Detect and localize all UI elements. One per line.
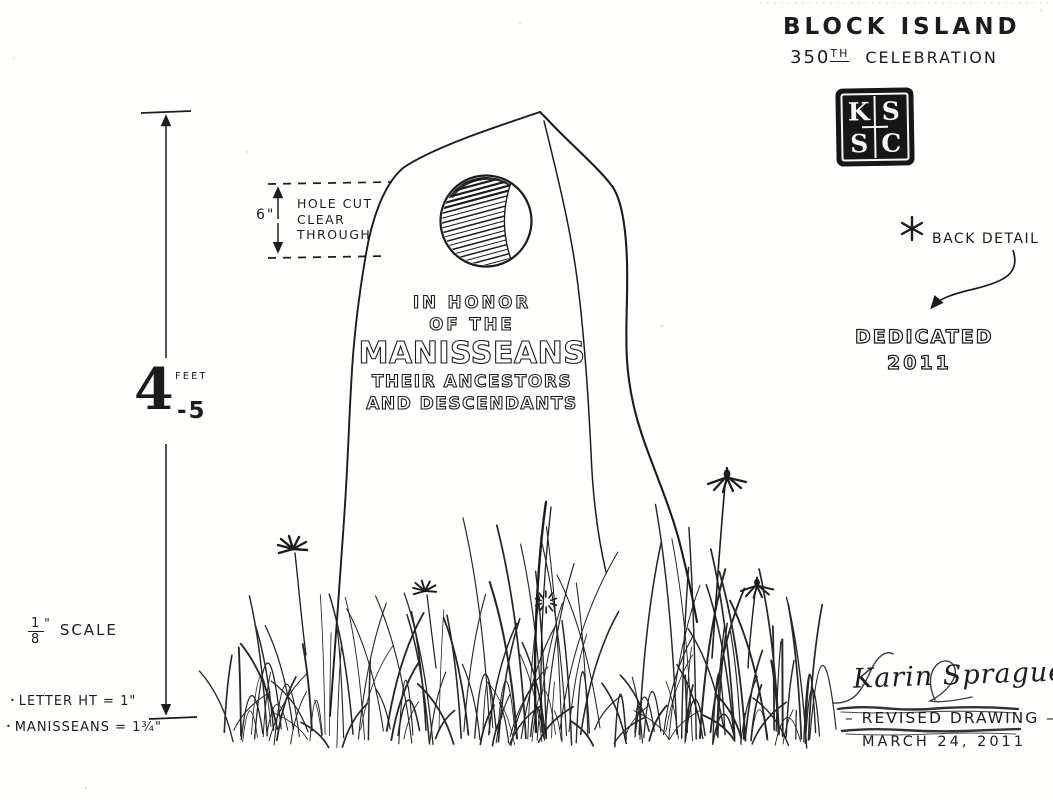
height-feet-unit: FEET [175, 371, 208, 382]
stamp-letter-s1: S [874, 94, 907, 127]
ordinal-suffix: TH [830, 47, 849, 62]
hole-note-line2: CLEAR [297, 212, 373, 228]
inscription-line3: MANISSEANS [352, 339, 592, 369]
hole-inner-crescent [504, 183, 531, 259]
daisy-stem [427, 595, 436, 668]
daisy-stem [295, 553, 306, 655]
inscription-line2: OF THE [352, 317, 592, 334]
hole-note-line1: HOLE CUT [297, 196, 373, 212]
note-bullet: • [6, 722, 12, 731]
back-detail-label: BACK DETAIL [932, 231, 1039, 247]
tall-grass-blades [535, 502, 618, 732]
letter-height-text: LETTER HT = 1" [19, 694, 137, 709]
stamp-letter-k: K [842, 95, 875, 128]
height-feet-value: 4 [134, 356, 174, 423]
dedication-year: 2011 [887, 352, 952, 374]
revision-status: – REVISED DRAWING – [845, 709, 1053, 727]
project-title: BLOCK ISLAND [783, 14, 1021, 40]
grass [200, 505, 837, 749]
scale-denominator: 8 [28, 632, 44, 646]
hole-dimension-value: 6" [256, 207, 275, 223]
manisseans-height-text: MANISSEANS = 1¾" [15, 720, 162, 735]
inscription-line5: AND DESCENDANTS [352, 396, 592, 413]
coneflower-icon [741, 578, 773, 598]
stonecarver-stamp-logo: K S S C [835, 87, 914, 166]
inscription-line1: IN HONOR [352, 295, 592, 312]
inch-mark: " [44, 616, 52, 630]
memorial-stone-drawing-page: BLOCK ISLAND 350THCELEBRATION K S S C BA… [0, 0, 1053, 800]
note-bullet: • [10, 696, 16, 705]
daisy-flower-icon [413, 581, 436, 595]
scale-numerator: 1 [28, 617, 44, 632]
hole-cut-detail [427, 167, 545, 275]
daisy-flower-icon [278, 536, 307, 553]
back-detail-arrow [933, 250, 1015, 306]
anniversary-number: 350 [790, 47, 830, 68]
inscription-line4: THEIR ANCESTORS [352, 374, 592, 391]
scale-label: SCALE [60, 621, 118, 639]
celebration-label: CELEBRATION [865, 48, 998, 67]
project-subtitle: 350THCELEBRATION [790, 47, 998, 68]
hole-cut-note: HOLE CUT CLEAR THROUGH [297, 196, 373, 243]
dedicated-label: DEDICATED [855, 326, 993, 348]
height-inches-value: -5 [177, 398, 207, 424]
stamp-letter-s2: S [843, 127, 876, 160]
manisseans-height-note: •MANISSEANS = 1¾" [6, 720, 162, 735]
stamp-letter-c: C [875, 126, 908, 159]
drawing-date: MARCH 24, 2011 [862, 734, 1026, 750]
letter-height-note: •LETTER HT = 1" [10, 694, 136, 709]
asterisk-icon [902, 217, 922, 240]
scale-note: 18"SCALE [28, 616, 118, 646]
coneflower-icon [708, 468, 746, 492]
hole-note-line3: THROUGH [297, 227, 373, 243]
scale-fraction: 18 [28, 617, 44, 646]
stone-inscription: IN HONOR OF THE MANISSEANS THEIR ANCESTO… [352, 295, 592, 413]
